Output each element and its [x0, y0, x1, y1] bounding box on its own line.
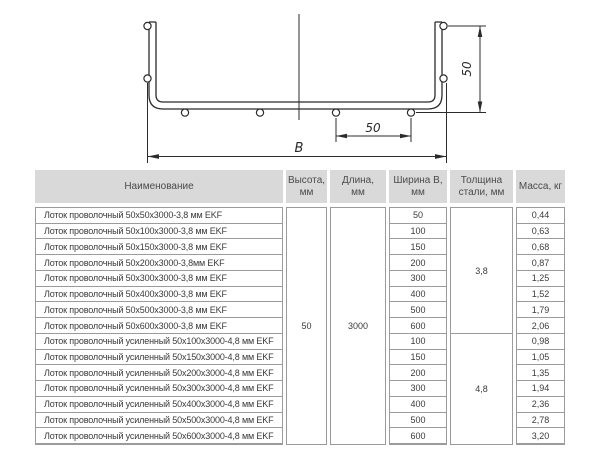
mass-column-body: 0,44 0,63 0,68 0,87 1,25 1,52 1,79 2,06 …: [516, 207, 565, 445]
name-cell: Лоток проволочный усиленный 50х300х3000-…: [36, 381, 282, 397]
column-length: Длина, мм 3000: [330, 170, 386, 445]
spec-table: Наименование Лоток проволочный 50х50х300…: [35, 170, 565, 445]
name-cell: Лоток проволочный 50х100х3000-3,8 мм EKF: [36, 224, 282, 240]
header-thickness: Толщина стали, мм: [450, 170, 513, 203]
name-cell: Лоток проволочный усиленный 50х150х3000-…: [36, 350, 282, 366]
header-height: Высота, мм: [286, 170, 327, 203]
name-column-body: Лоток проволочный 50х50х3000-3,8 мм EKF …: [35, 207, 283, 445]
length-column-body: 3000: [330, 207, 386, 445]
width-cell: 150: [390, 239, 446, 255]
wire-tray-spec-sheet: B 50 50 Наименование Лоток проволочный 5…: [0, 0, 600, 450]
height-column-body: 50: [286, 207, 327, 445]
mass-cell: 2,06: [517, 318, 564, 334]
mass-cell: 1,79: [517, 302, 564, 318]
header-width: Ширина В, мм: [389, 170, 447, 203]
width-cell: 200: [390, 255, 446, 271]
mass-cell: 0,87: [517, 255, 564, 271]
header-name: Наименование: [35, 170, 283, 203]
mass-cell: 0,44: [517, 208, 564, 224]
tray-profile-inner: [156, 22, 435, 102]
mass-cell: 2,78: [517, 413, 564, 429]
width-column-body: 50 100 150 200 300 400 500 600 100: [389, 207, 447, 445]
mass-cell: 0,63: [517, 224, 564, 240]
column-height: Высота, мм 50: [286, 170, 327, 445]
mass-cell: 0,98: [517, 334, 564, 350]
width-cell: 100: [390, 224, 446, 240]
tray-profile-outer: [149, 22, 442, 109]
name-cell: Лоток проволочный 50х200х3000-3,8мм EKF: [36, 255, 282, 271]
name-cell: Лоток проволочный 50х150х3000-3,8 мм EKF: [36, 239, 282, 255]
name-cell: Лоток проволочный 50х600х3000-3,8 мм EKF: [36, 318, 282, 334]
width-cell: 300: [390, 381, 446, 397]
name-cell: Лоток проволочный 50х400х3000-3,8 мм EKF: [36, 287, 282, 303]
name-cell: Лоток проволочный усиленный 50х600х3000-…: [36, 428, 282, 444]
name-cell: Лоток проволочный 50х500х3000-3,8 мм EKF: [36, 302, 282, 318]
name-cell: Лоток проволочный усиленный 50х100х3000-…: [36, 334, 282, 350]
name-cell: Лоток проволочный усиленный 50х400х3000-…: [36, 397, 282, 413]
width-cell: 300: [390, 271, 446, 287]
thickness-merged-cell-group1: 3,8: [451, 208, 512, 334]
dimension-arrowheads: [148, 26, 483, 159]
mass-cell: 3,20: [517, 428, 564, 444]
mass-cell: 1,25: [517, 271, 564, 287]
thickness-merged-cell-group2: 4,8: [451, 334, 512, 444]
tray-cross-section-diagram: B 50 50: [0, 0, 600, 168]
width-cell: 200: [390, 365, 446, 381]
width-cell: 500: [390, 413, 446, 429]
mass-cell: 1,05: [517, 350, 564, 366]
width-cell: 500: [390, 302, 446, 318]
header-length: Длина, мм: [330, 170, 386, 203]
width-dimension-label: B: [295, 141, 304, 156]
name-cell: Лоток проволочный усиленный 50х500х3000-…: [36, 413, 282, 429]
mass-cell: 0,68: [517, 239, 564, 255]
width-cell: 50: [390, 208, 446, 224]
wire-spacing-dimension-label: 50: [365, 121, 381, 135]
mass-cell: 1,52: [517, 287, 564, 303]
width-cell: 400: [390, 397, 446, 413]
height-merged-cell: 50: [287, 208, 326, 444]
width-cell: 400: [390, 287, 446, 303]
header-mass: Масса, кг: [516, 170, 565, 203]
mass-cell: 1,35: [517, 365, 564, 381]
width-cell: 600: [390, 428, 446, 444]
mass-cell: 1,94: [517, 381, 564, 397]
column-mass: Масса, кг 0,44 0,63 0,68 0,87 1,25 1,52 …: [516, 170, 565, 445]
mass-cell: 2,36: [517, 397, 564, 413]
column-width: Ширина В, мм 50 100 150 200 300 400 500 …: [389, 170, 447, 445]
thickness-column-body: 3,8 4,8: [450, 207, 513, 445]
name-cell: Лоток проволочный 50х50х3000-3,8 мм EKF: [36, 208, 282, 224]
column-thickness: Толщина стали, мм 3,8 4,8: [450, 170, 513, 445]
width-cell: 600: [390, 318, 446, 334]
height-dimension-label: 50: [460, 61, 474, 77]
width-cell: 150: [390, 350, 446, 366]
width-cell: 100: [390, 334, 446, 350]
name-cell: Лоток проволочный 50х300х3000-3,8 мм EKF: [36, 271, 282, 287]
name-cell: Лоток проволочный усиленный 50х200х3000-…: [36, 365, 282, 381]
length-merged-cell: 3000: [331, 208, 385, 444]
column-name: Наименование Лоток проволочный 50х50х300…: [35, 170, 283, 445]
